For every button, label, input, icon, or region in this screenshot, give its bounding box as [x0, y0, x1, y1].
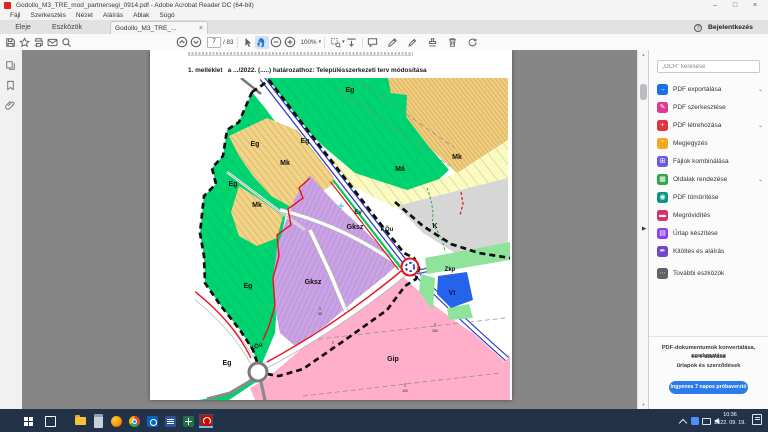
- map-label: Eg: [346, 87, 355, 94]
- map-label: Gip: [387, 356, 399, 363]
- menu-edit[interactable]: Szerkesztés: [25, 12, 70, 19]
- clock-date: 2022. 09. 19.: [712, 419, 748, 427]
- chevron-down-icon[interactable]: ▾: [319, 39, 322, 45]
- elevation-label: 60: [331, 346, 335, 350]
- tools-panel: → PDF exportálása ⌄ ✎ PDF szerkesztése +…: [648, 50, 768, 409]
- comment-tool-icon: “: [657, 138, 668, 149]
- minimize-button[interactable]: –: [706, 0, 724, 11]
- excel-icon[interactable]: [181, 414, 195, 428]
- chevron-down-icon[interactable]: ⌄: [758, 122, 763, 129]
- panel-collapse-handle[interactable]: ▶: [642, 226, 646, 232]
- map-label: Eg: [223, 360, 232, 367]
- signature-icon[interactable]: [406, 36, 420, 49]
- firefox-icon[interactable]: [109, 414, 123, 428]
- word-icon[interactable]: [163, 414, 177, 428]
- chevron-down-icon[interactable]: ⌄: [758, 86, 763, 93]
- close-tab-icon[interactable]: ×: [199, 25, 203, 32]
- redact-icon: ▬: [657, 210, 668, 221]
- previous-page-icon[interactable]: [175, 36, 189, 49]
- panel-tool-export-pdf[interactable]: → PDF exportálása ⌄: [657, 82, 763, 96]
- maximize-button[interactable]: □: [726, 0, 744, 11]
- print-icon[interactable]: [31, 36, 45, 49]
- main-toolbar: 7 / 83 100% ▾ ▾: [0, 34, 768, 51]
- window-title: Godollo_M3_TRE_mod_partnersegi_0914.pdf …: [16, 2, 254, 9]
- page-thumbnails-icon[interactable]: [5, 58, 17, 70]
- tool-label: PDF szerkesztése: [673, 104, 763, 111]
- clock-time: 10:36: [712, 411, 748, 419]
- left-sidebar-rail: [0, 50, 23, 409]
- tool-label: PDF tömörítése: [673, 194, 763, 201]
- map-label: Eg: [301, 138, 310, 145]
- panel-tool-combine-files[interactable]: ⊞ Fájlok kombinálása: [657, 154, 763, 168]
- roundabout-main: [402, 259, 419, 276]
- star-icon[interactable]: [17, 36, 31, 49]
- rotate-icon[interactable]: [466, 36, 480, 49]
- attachments-icon[interactable]: [5, 98, 17, 110]
- prepare-form-icon: ▤: [657, 228, 668, 239]
- promo-text-line2: és e-aláírása: [651, 353, 766, 361]
- map-label: Eg: [251, 141, 260, 148]
- menu-file[interactable]: Fájl: [5, 12, 25, 19]
- tools-search-input[interactable]: [657, 60, 760, 73]
- bookmarks-icon[interactable]: [5, 78, 17, 90]
- panel-tool-edit-pdf[interactable]: ✎ PDF szerkesztése: [657, 100, 763, 114]
- close-button[interactable]: ×: [746, 0, 764, 11]
- help-icon[interactable]: ?: [694, 24, 702, 32]
- map-label: Má: [395, 166, 405, 173]
- tool-label: Megjegyzés: [673, 140, 763, 147]
- action-center-icon[interactable]: [752, 414, 762, 425]
- zoning-map: Eg Eg Eg Eg Eg Eg Mk Mk Mk Má K Ev Gksz …: [195, 78, 510, 400]
- map-label: Mk: [280, 160, 290, 167]
- fill-sign-icon: ✒: [657, 246, 668, 257]
- marquee-zoom-icon[interactable]: [328, 36, 342, 49]
- elevation-label: 60: [318, 312, 322, 316]
- more-tools-icon: ⋯: [657, 268, 668, 279]
- map-label: Gksz: [305, 279, 322, 286]
- delete-icon[interactable]: [446, 36, 460, 49]
- menu-bar: Fájl Szerkesztés Nézet Aláírás Ablak Súg…: [0, 11, 768, 21]
- map-label: Eg: [244, 283, 253, 290]
- tool-label: Kitöltés és aláírás: [673, 248, 763, 255]
- elevation-label: 250: [432, 329, 438, 333]
- panel-divider: [649, 336, 768, 337]
- email-icon[interactable]: [45, 36, 59, 49]
- chrome-icon[interactable]: [127, 414, 141, 428]
- chevron-down-icon[interactable]: ⌄: [758, 176, 763, 183]
- panel-tool-prepare-form[interactable]: ▤ Űrlap készítése: [657, 226, 763, 240]
- zoom-level-select[interactable]: 100%: [301, 39, 317, 46]
- tab-tools[interactable]: Eszközök: [44, 21, 90, 34]
- panel-tool-comment[interactable]: “ Megjegyzés: [657, 136, 763, 150]
- panel-tool-organize-pages[interactable]: ▦ Oldalak rendezése ⌄: [657, 172, 763, 186]
- tab-document[interactable]: Godollo_M3_TRE_... ×: [110, 21, 208, 34]
- calculator-icon[interactable]: [91, 414, 105, 428]
- map-label: Ev: [354, 210, 362, 216]
- search-icon[interactable]: [59, 36, 73, 49]
- map-label: Gksz: [347, 224, 364, 231]
- zoom-in-icon[interactable]: [283, 36, 297, 49]
- panel-tool-create-pdf[interactable]: + PDF létrehozása ⌄: [657, 118, 763, 132]
- tool-label: További eszközök: [673, 270, 763, 277]
- pdf-page: 1. melléklet a .../2022. (.....) határoz…: [150, 50, 512, 400]
- page-heading: 1. melléklet a .../2022. (.....) határoz…: [188, 67, 427, 74]
- comment-icon[interactable]: [366, 36, 380, 49]
- tool-label: PDF exportálása: [673, 86, 758, 93]
- tab-home[interactable]: Eleje: [6, 21, 40, 34]
- next-page-icon[interactable]: [189, 36, 203, 49]
- panel-tool-fill-sign[interactable]: ✒ Kitöltés és aláírás: [657, 244, 763, 258]
- compress-pdf-icon: ◉: [657, 192, 668, 203]
- menu-help[interactable]: Súgó: [154, 12, 179, 19]
- tool-label: Megrövidítés: [673, 212, 763, 219]
- combine-files-icon: ⊞: [657, 156, 668, 167]
- free-trial-button[interactable]: Ingyenes 7 napos próbaverzió: [669, 381, 748, 394]
- tool-label: Űrlap készítése: [673, 230, 763, 237]
- map-label: K: [432, 223, 437, 230]
- menu-window[interactable]: Ablak: [128, 12, 154, 19]
- zoom-out-icon[interactable]: [269, 36, 283, 49]
- tool-label: Fájlok kombinálása: [673, 158, 763, 165]
- file-explorer-icon[interactable]: [73, 414, 87, 428]
- panel-tool-compress-pdf[interactable]: ◉ PDF tömörítése: [657, 190, 763, 204]
- scrollbar-thumb[interactable]: [640, 84, 647, 100]
- select-tool-icon[interactable]: [241, 36, 255, 49]
- tool-label: PDF létrehozása: [673, 122, 758, 129]
- elevation-label: 100: [402, 389, 408, 393]
- tab-bar: Eleje Eszközök Godollo_M3_TRE_... × ? Be…: [0, 21, 768, 35]
- map-label: Mk: [252, 202, 262, 209]
- export-pdf-icon: →: [657, 84, 668, 95]
- map-label: Eg: [229, 181, 238, 188]
- panel-tool-redact[interactable]: ▬ Megrövidítés: [657, 208, 763, 222]
- menu-sign[interactable]: Aláírás: [98, 12, 128, 19]
- map-label: Mk: [452, 154, 462, 161]
- map-label: Vt: [449, 290, 457, 297]
- clipped-header-text: [188, 52, 413, 56]
- acrobat-app-icon: [4, 2, 11, 9]
- save-icon[interactable]: [3, 36, 17, 49]
- task-view-icon[interactable]: [43, 414, 57, 428]
- promo-text-line3: űrlapok és szerződések: [651, 362, 766, 370]
- panel-tool-more-tools[interactable]: ⋯ További eszközök: [657, 266, 763, 280]
- draw-pencil-icon[interactable]: [386, 36, 400, 49]
- taskbar-clock[interactable]: 10:36 2022. 09. 19.: [712, 411, 748, 428]
- menu-view[interactable]: Nézet: [71, 12, 98, 19]
- map-label: Zkp: [445, 267, 456, 273]
- roundabout-secondary: [249, 363, 267, 381]
- outlook-icon[interactable]: [145, 414, 159, 428]
- page-count-label: / 83: [223, 39, 234, 46]
- edit-pdf-icon: ✎: [657, 102, 668, 113]
- organize-pages-icon: ▦: [657, 174, 668, 185]
- sign-in-button[interactable]: Bejelentkezés: [708, 21, 753, 34]
- stamp-icon[interactable]: [426, 36, 440, 49]
- start-button[interactable]: [21, 414, 35, 428]
- tab-document-label: Godollo_M3_TRE_...: [115, 25, 196, 32]
- fit-width-icon[interactable]: [345, 36, 359, 49]
- tool-label: Oldalak rendezése: [673, 176, 758, 183]
- create-pdf-icon: +: [657, 120, 668, 131]
- map-label: KÖu: [381, 226, 394, 233]
- document-area[interactable]: 1. melléklet a .../2022. (.....) határoz…: [22, 50, 637, 409]
- acrobat-taskbar-icon[interactable]: [199, 414, 213, 428]
- page-number-input[interactable]: 7: [207, 37, 221, 48]
- hand-tool-icon[interactable]: [255, 36, 269, 49]
- town-center-block: [419, 242, 510, 320]
